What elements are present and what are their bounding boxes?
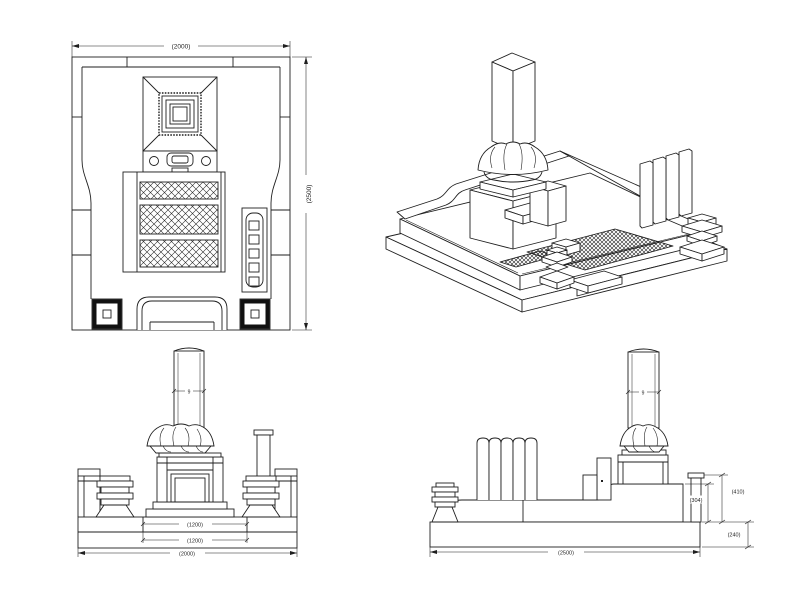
plan-sotoba-stand — [242, 208, 267, 292]
plan-front-step — [137, 297, 227, 330]
plan-pagoda-top — [143, 77, 217, 151]
front-pillar: 9 — [172, 348, 206, 428]
plan-lantern-base-left — [92, 299, 122, 329]
side-sotoba-slats — [477, 438, 537, 500]
plan-dim-depth: (2500) — [292, 57, 313, 330]
side-pedestal — [618, 450, 668, 484]
side-dim-pillar-label: 9 — [642, 391, 645, 397]
plan-dim-width: (2000) — [72, 41, 290, 57]
front-lotus — [147, 424, 214, 453]
front-dim-step-lower-label: (1200) — [187, 539, 203, 545]
plan-lattice-steps — [123, 172, 225, 272]
front-pedestal — [146, 453, 234, 517]
front-sotoba-post — [254, 430, 273, 481]
side-lantern — [432, 483, 458, 522]
iso-pillar — [492, 53, 535, 150]
side-pillar: 9 — [626, 349, 661, 428]
plan-view: (2000) (2500) — [72, 41, 313, 330]
front-elevation-view: 9 (1200) (1200) (2000) — [78, 348, 297, 558]
side-step-blocks — [583, 458, 611, 500]
side-dim-total: (2500) — [430, 547, 700, 557]
front-dim-pillar-label: 9 — [188, 390, 191, 396]
front-dim-step-upper-label: (1200) — [187, 523, 203, 529]
drawing-canvas: (2000) (2500) — [0, 0, 800, 600]
iso-sotoba-slats — [640, 149, 692, 228]
side-base-slab — [430, 484, 700, 547]
front-dim-total: (2000) — [78, 548, 297, 558]
plan-lantern-base-right — [240, 299, 270, 329]
side-elevation-view: 9 (304) (410) (240) — [430, 349, 754, 557]
side-dim-height-base-label: (240) — [728, 533, 741, 539]
front-lantern-right — [242, 476, 280, 517]
front-dim-total-label: (2000) — [179, 552, 195, 558]
plan-pagoda-base-band — [143, 151, 217, 172]
plan-dim-depth-label: (2500) — [306, 185, 313, 204]
side-dim-height-total-label: (410) — [732, 490, 745, 496]
front-lantern-left — [96, 476, 134, 517]
monument-technical-drawing: (2000) (2500) — [0, 0, 800, 600]
side-dim-height-upper-label: (304) — [690, 498, 703, 504]
side-lotus — [620, 425, 668, 452]
side-dim-total-label: (2500) — [558, 551, 574, 557]
plan-dim-width-label: (2000) — [172, 44, 191, 51]
isometric-view — [386, 53, 727, 312]
